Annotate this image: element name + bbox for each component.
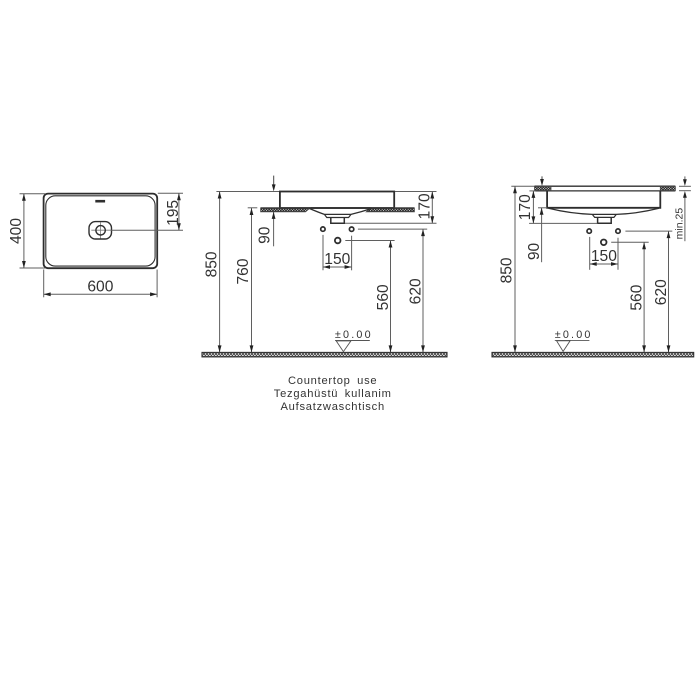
svg-text:Tezgahüstü kullanim: Tezgahüstü kullanim bbox=[274, 388, 392, 400]
svg-text:620: 620 bbox=[408, 278, 425, 304]
svg-text:400: 400 bbox=[8, 218, 25, 244]
svg-text:600: 600 bbox=[87, 278, 113, 295]
svg-text:170: 170 bbox=[417, 193, 434, 219]
svg-text:±0.00: ±0.00 bbox=[335, 329, 373, 341]
svg-text:±0.00: ±0.00 bbox=[555, 329, 593, 341]
svg-text:850: 850 bbox=[204, 251, 221, 277]
svg-text:Aufsatzwaschtisch: Aufsatzwaschtisch bbox=[281, 401, 385, 413]
svg-text:620: 620 bbox=[653, 279, 670, 305]
svg-text:560: 560 bbox=[375, 284, 392, 310]
svg-text:150: 150 bbox=[324, 251, 350, 268]
svg-text:150: 150 bbox=[591, 248, 617, 265]
svg-text:195: 195 bbox=[165, 200, 182, 226]
svg-text:Countertop use: Countertop use bbox=[288, 375, 377, 387]
svg-text:90: 90 bbox=[526, 243, 543, 261]
svg-text:170: 170 bbox=[517, 194, 534, 220]
svg-text:min.25: min.25 bbox=[674, 208, 686, 240]
svg-text:90: 90 bbox=[256, 226, 273, 244]
svg-text:760: 760 bbox=[235, 258, 252, 284]
svg-text:560: 560 bbox=[628, 284, 645, 310]
svg-text:850: 850 bbox=[498, 257, 515, 283]
